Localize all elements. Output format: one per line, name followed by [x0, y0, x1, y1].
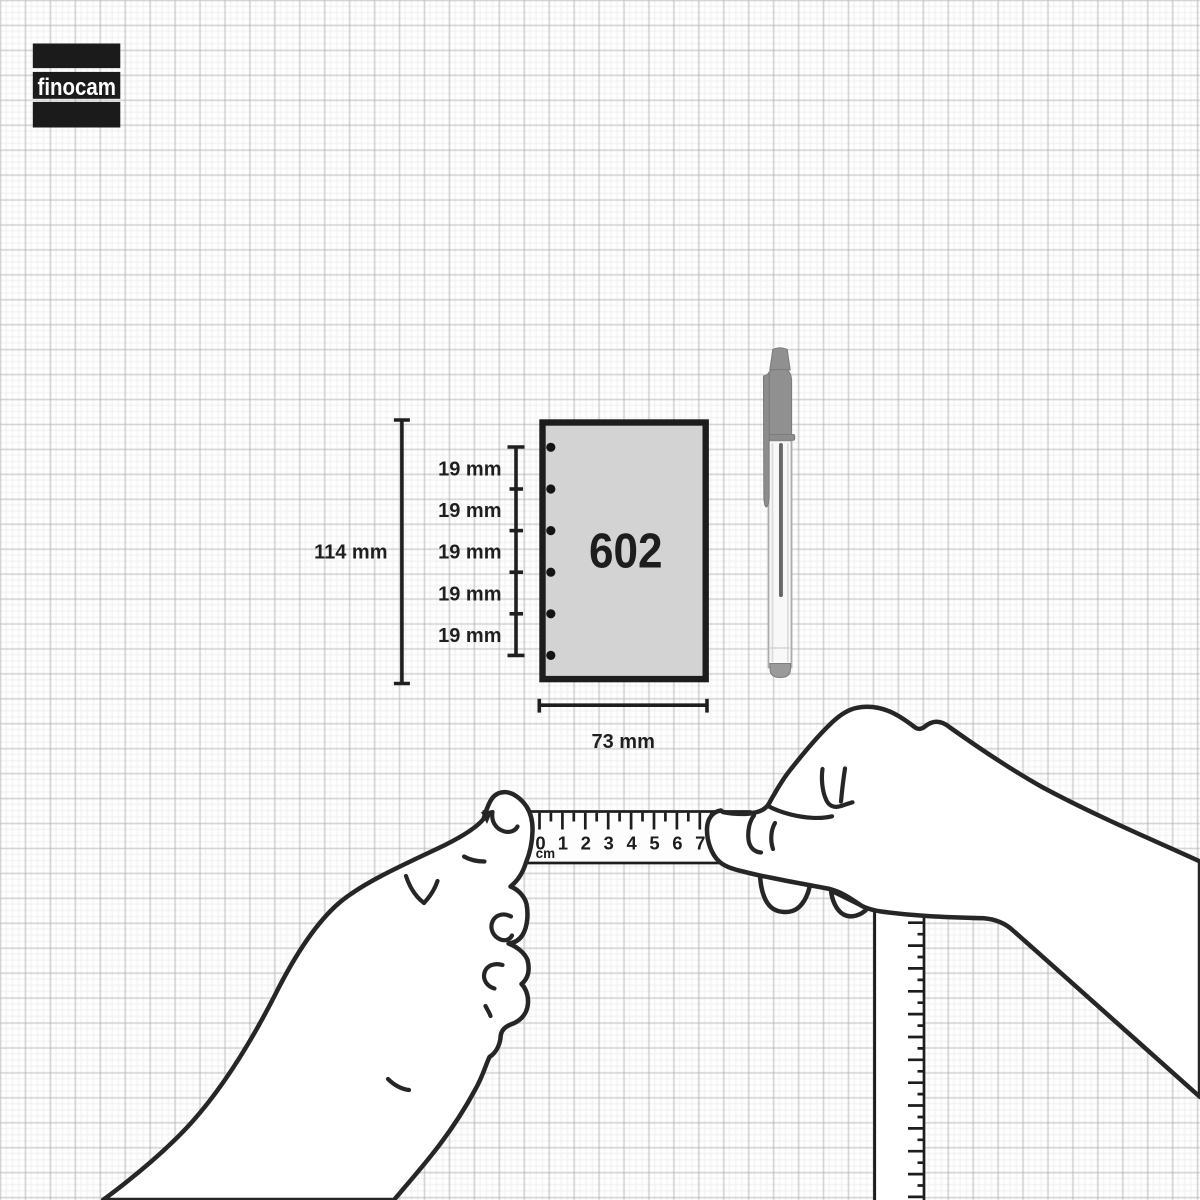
- svg-text:7: 7: [695, 833, 705, 854]
- svg-text:2: 2: [581, 833, 591, 854]
- svg-text:3: 3: [604, 833, 614, 854]
- svg-text:1: 1: [558, 833, 568, 854]
- svg-text:5: 5: [649, 833, 659, 854]
- svg-text:19 mm: 19 mm: [438, 500, 501, 522]
- svg-text:19 mm: 19 mm: [438, 583, 501, 605]
- svg-text:73 mm: 73 mm: [592, 731, 655, 753]
- svg-text:114 mm: 114 mm: [314, 541, 387, 563]
- svg-text:4: 4: [626, 833, 637, 854]
- svg-text:6: 6: [672, 833, 682, 854]
- svg-text:19 mm: 19 mm: [438, 625, 501, 647]
- svg-text:19 mm: 19 mm: [438, 542, 501, 564]
- svg-text:cm: cm: [536, 846, 556, 861]
- svg-text:602: 602: [589, 525, 663, 579]
- svg-text:finocam: finocam: [38, 74, 117, 101]
- svg-text:19 mm: 19 mm: [438, 459, 501, 481]
